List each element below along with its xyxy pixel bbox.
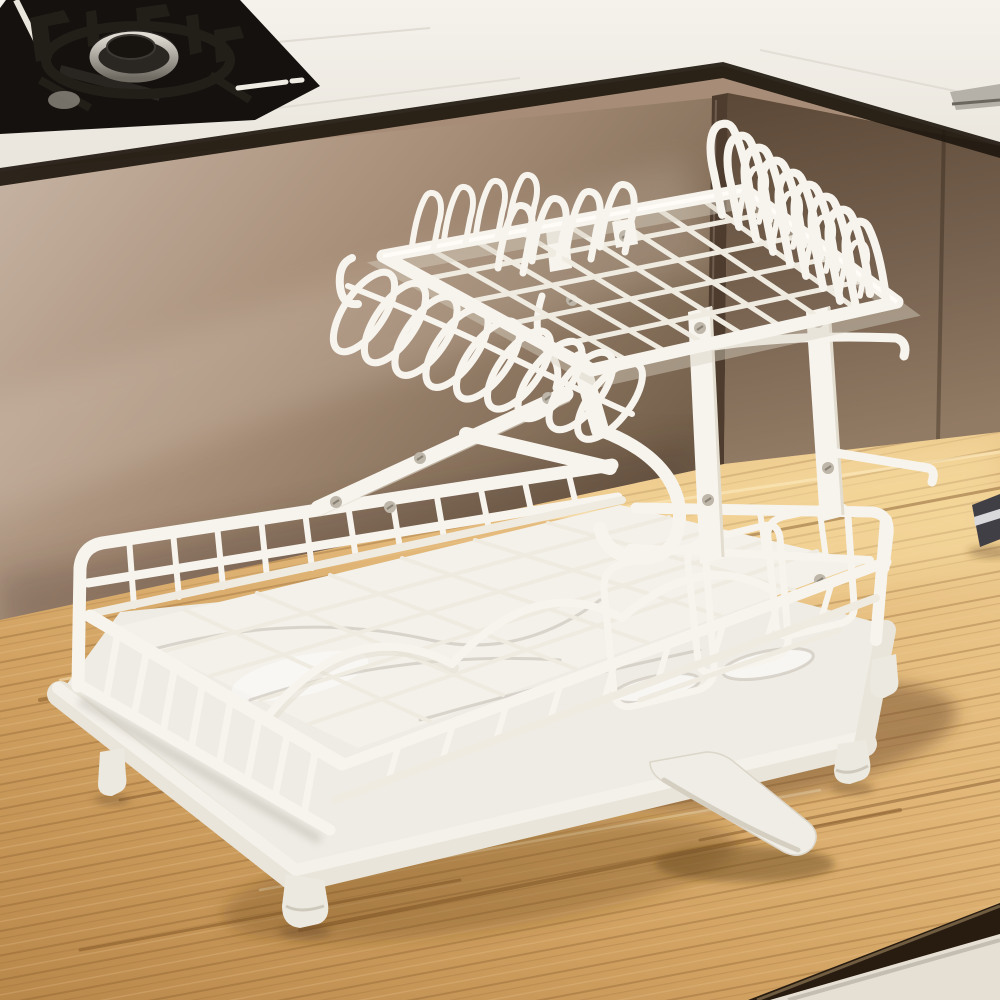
stove-knob-glint	[48, 91, 80, 109]
product-photo	[0, 0, 1000, 1000]
burner-ring	[90, 30, 178, 78]
